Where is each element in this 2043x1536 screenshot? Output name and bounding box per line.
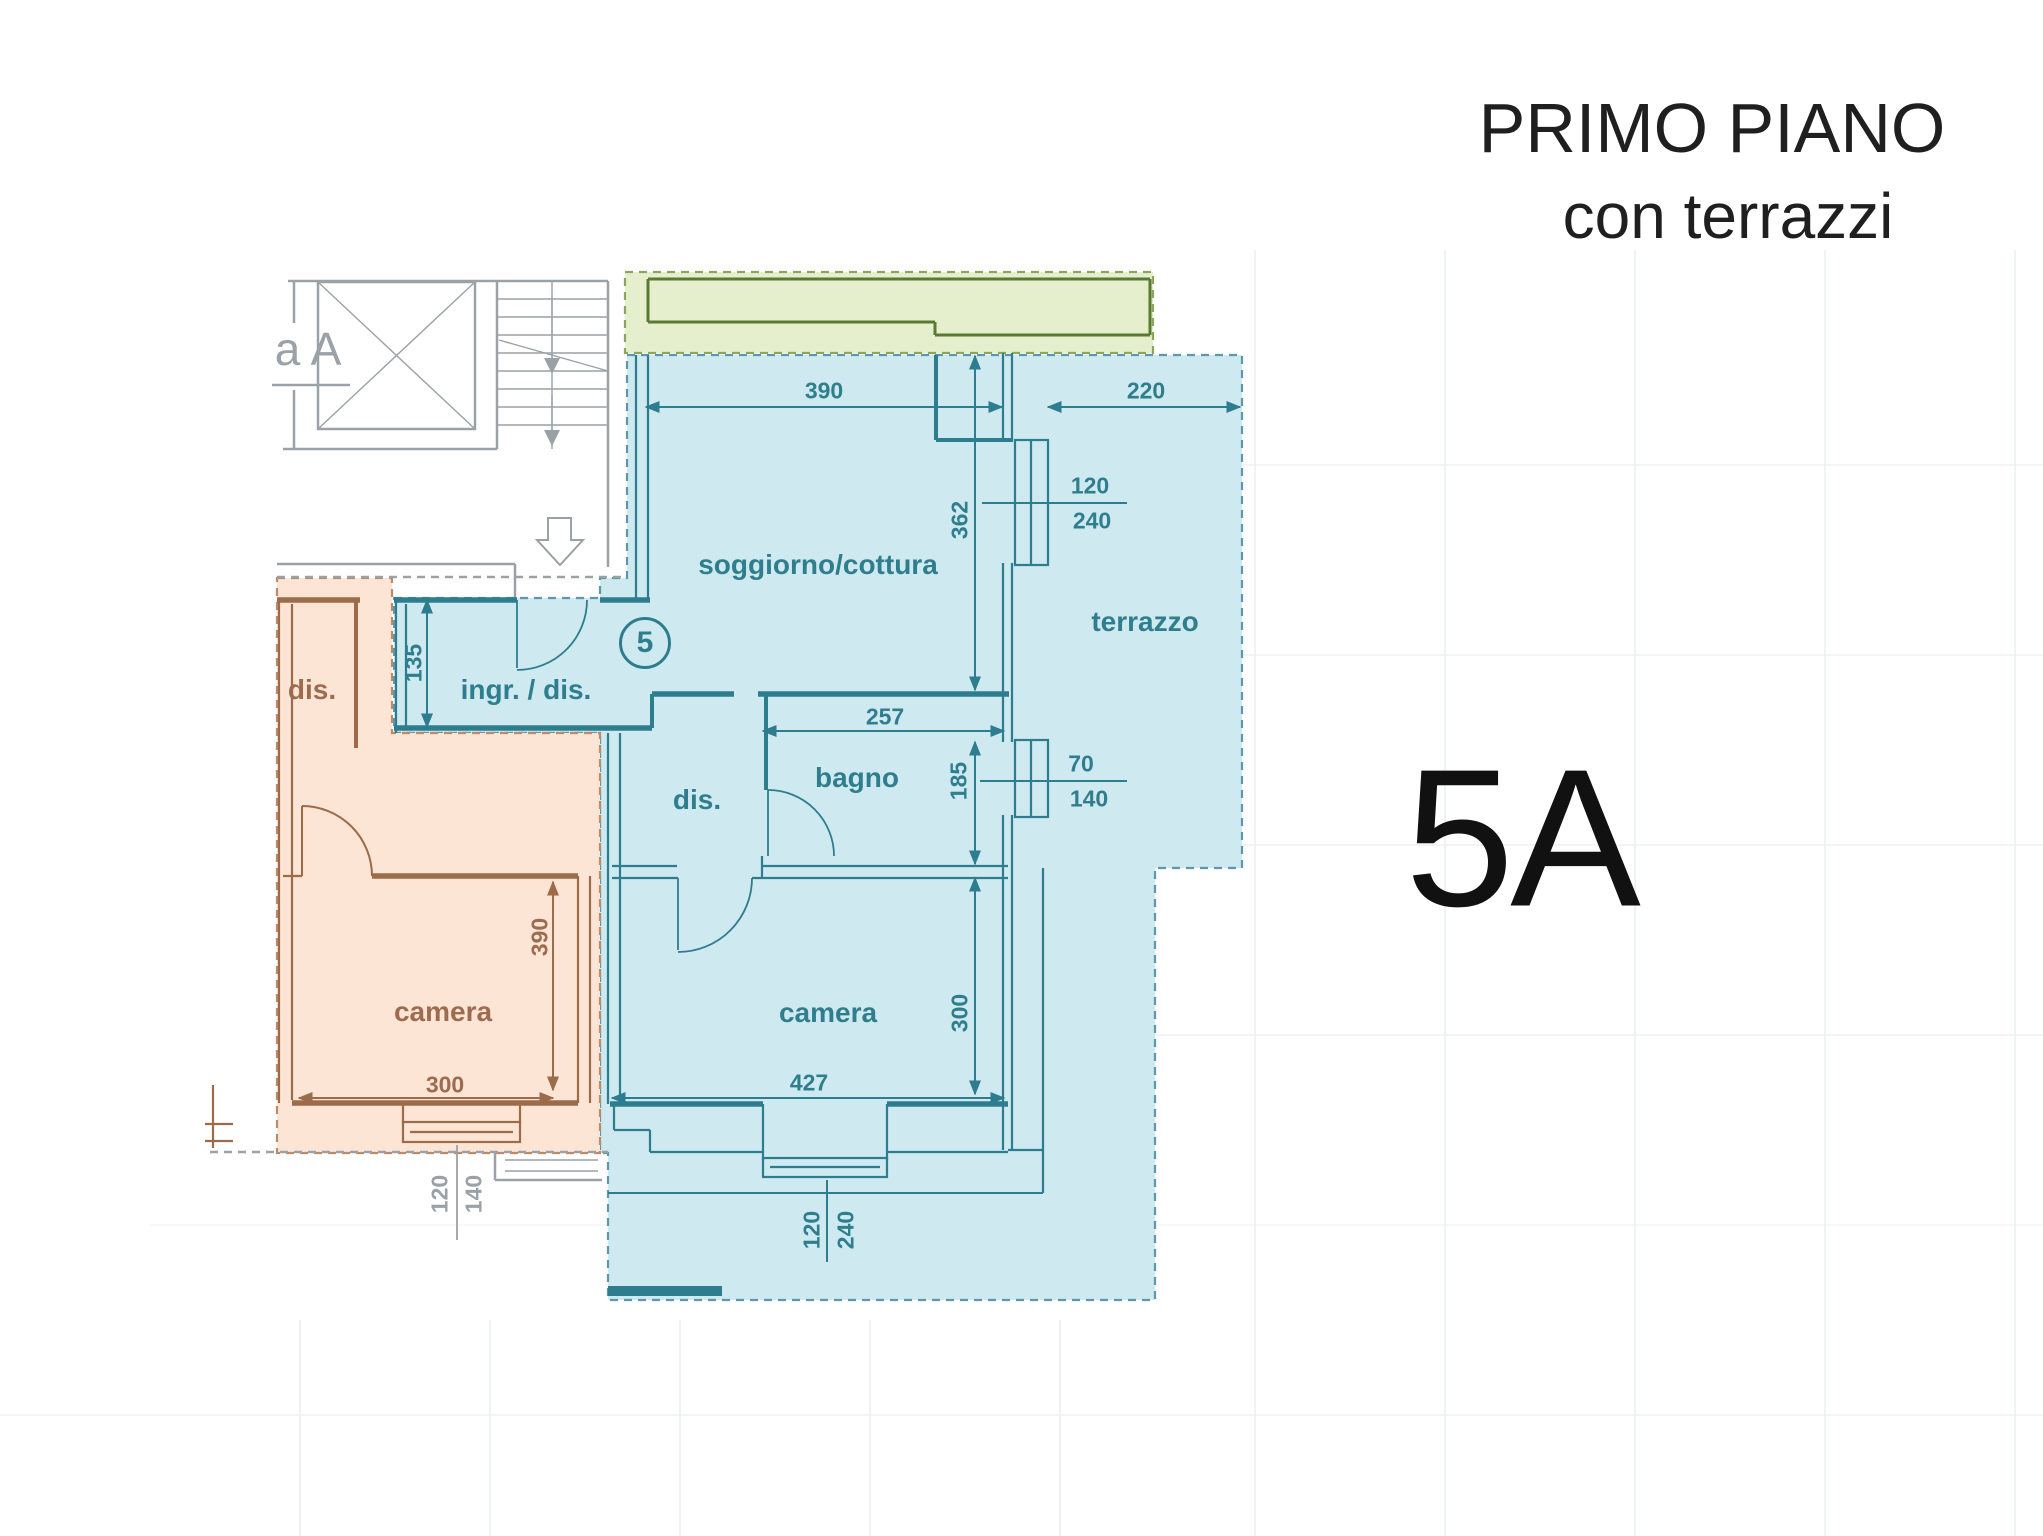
room-label-bath: bagno xyxy=(815,762,899,794)
room-label-terrace: terrazzo xyxy=(1091,606,1198,638)
room-label-living: soggiorno/cottura xyxy=(698,549,938,581)
dim-orange-bedroom-width: 300 xyxy=(426,1072,464,1099)
dim-terrace-width: 220 xyxy=(1127,378,1165,405)
dim-orange-window-width: 120 xyxy=(427,1175,454,1213)
dim-living-window-height: 240 xyxy=(1073,508,1111,535)
dim-bedroom-window-width: 120 xyxy=(799,1211,826,1249)
unit-number: 5 xyxy=(637,626,654,660)
room-label-orange-hall: dis. xyxy=(288,674,336,706)
stair-label: a A xyxy=(275,322,342,376)
dim-bath-window-height: 140 xyxy=(1070,786,1108,813)
room-label-orange-bedroom: camera xyxy=(394,996,492,1028)
entrance-arrow-icon xyxy=(537,518,583,565)
dim-bath-width: 257 xyxy=(866,704,904,731)
dim-orange-window-height: 140 xyxy=(461,1175,488,1213)
green-terrace-region xyxy=(625,272,1153,353)
floor-plan-page: PRIMO PIANO con terrazzi 5A a A soggiorn… xyxy=(0,0,2043,1536)
dim-bedroom-depth: 300 xyxy=(947,994,974,1032)
dim-orange-bedroom-depth: 390 xyxy=(527,918,554,956)
dim-bedroom-window-height: 240 xyxy=(833,1211,860,1249)
dim-living-width: 390 xyxy=(805,378,843,405)
dim-living-depth: 362 xyxy=(947,501,974,539)
unit-big-label: 5A xyxy=(1405,726,1637,951)
page-title: PRIMO PIANO xyxy=(1479,88,1946,168)
dim-entry-width: 135 xyxy=(401,644,428,682)
dim-bath-window-width: 70 xyxy=(1068,751,1094,778)
dim-bath-depth: 185 xyxy=(946,762,973,800)
room-label-hall: dis. xyxy=(673,784,721,816)
dim-bedroom-width: 427 xyxy=(790,1070,828,1097)
dim-living-window-width: 120 xyxy=(1071,473,1109,500)
room-label-bedroom: camera xyxy=(779,997,877,1029)
page-subtitle: con terrazzi xyxy=(1563,179,1894,253)
room-label-entry: ingr. / dis. xyxy=(461,674,592,706)
stair-direction-arrows xyxy=(544,300,560,446)
unit-number-badge: 5 xyxy=(619,617,671,669)
